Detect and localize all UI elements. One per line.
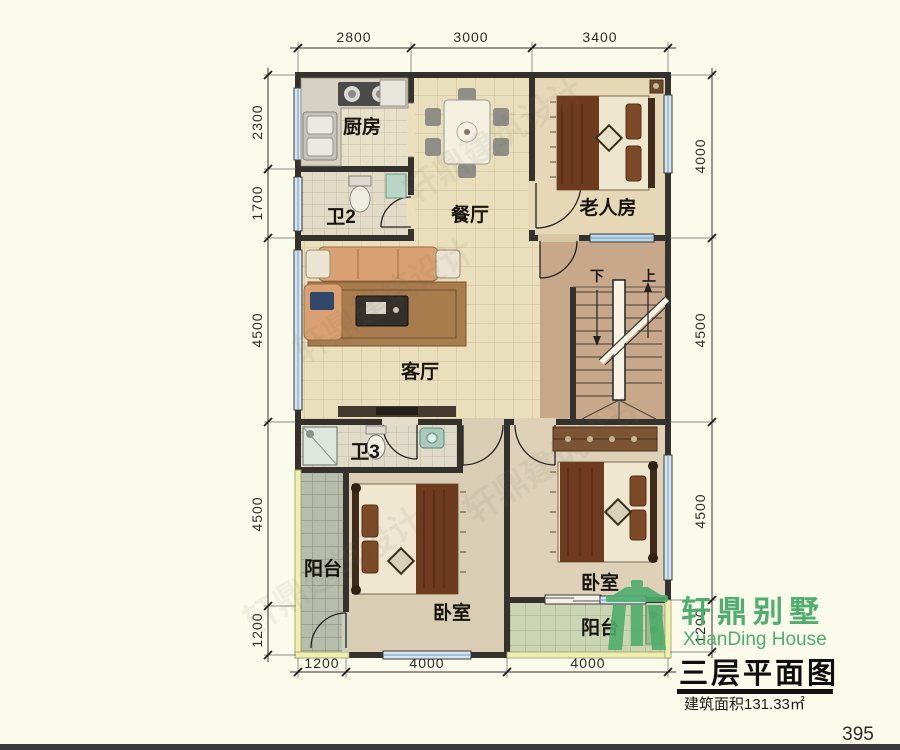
room-label-kitchen: 厨房 (343, 115, 381, 138)
window-elder-stairhall (590, 234, 654, 242)
toilet-icon (366, 426, 386, 434)
page-number: 395 (842, 724, 874, 745)
area-label: 建筑面积131.33㎡ (684, 696, 805, 713)
stair-down-label: 下 (590, 268, 604, 284)
plan-title: 三层平面图 (679, 658, 839, 690)
window-balcony-slider (545, 595, 601, 604)
room-label-bedroom-bottom: 卧室 (433, 601, 471, 624)
dim-left-5: 1200 (249, 612, 265, 647)
dim-top-2: 3000 (453, 29, 488, 45)
logo-name-en: XuanDing House (683, 629, 827, 650)
dim-top-3: 3400 (582, 29, 617, 45)
room-label-balcony-left: 阳台 (304, 557, 342, 580)
window-bath2-left (294, 177, 302, 231)
dim-left-1: 2300 (249, 104, 265, 139)
dim-left-4: 4500 (249, 496, 265, 531)
throw-pillow-icon (310, 292, 334, 310)
floor-plan-page: 下 上 (0, 0, 900, 750)
room-label-dining: 餐厅 (451, 203, 489, 226)
floor-plan-drawing: 下 上 (0, 0, 900, 750)
fridge-icon (380, 80, 406, 106)
window-bedroom-right (664, 455, 672, 580)
dim-bottom-3: 4000 (570, 655, 605, 671)
dim-left-2: 1700 (249, 185, 265, 220)
dim-bottom-2: 4000 (409, 655, 444, 671)
dim-right-1: 4000 (692, 138, 708, 173)
dim-top-1: 2800 (336, 29, 371, 45)
room-label-bedroom-right: 卧室 (581, 571, 619, 594)
room-label-bath3: 卫3 (350, 442, 380, 463)
room-label-living: 客厅 (401, 360, 439, 383)
logo-name-cn: 轩鼎别墅 (681, 596, 825, 629)
dim-left-3: 4500 (249, 312, 265, 347)
title-underline (677, 689, 833, 694)
toilet-icon (349, 176, 371, 186)
room-label-elder-room: 老人房 (579, 196, 636, 219)
tv-icon (376, 407, 418, 415)
dim-right-3: 4500 (692, 493, 708, 528)
stair-up-label: 上 (642, 268, 656, 284)
room-label-bath2: 卫2 (326, 207, 356, 228)
dim-bottom-1: 1200 (304, 655, 339, 671)
window-elder-right (664, 95, 672, 173)
dim-right-2: 4500 (692, 312, 708, 347)
bottom-edge-bar (0, 744, 900, 750)
